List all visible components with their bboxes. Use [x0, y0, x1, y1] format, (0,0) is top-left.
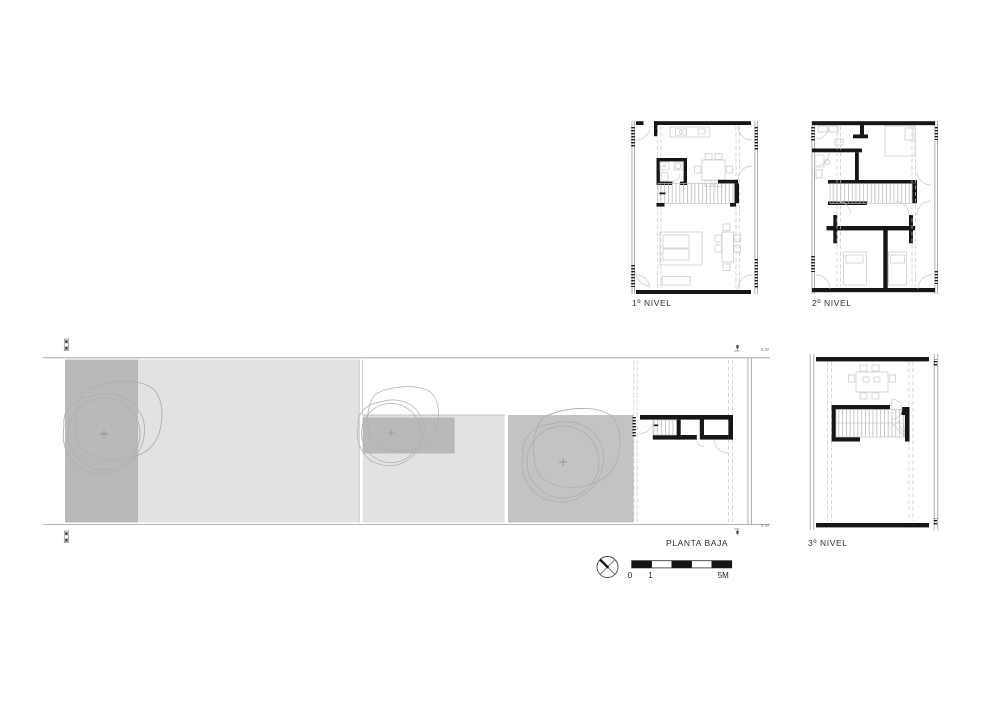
- level-marker: [64, 339, 68, 351]
- kitchen-counter: [670, 127, 710, 137]
- stair-enclosure: [832, 399, 910, 442]
- floor-plan-1-nivel: [631, 121, 758, 294]
- bedrooms-lower: [844, 252, 907, 285]
- boundary-label-em-bottom: E.M: [761, 523, 769, 528]
- wall-hatch: [631, 126, 635, 148]
- service-block: [633, 415, 734, 453]
- label-planta-baja: PLANTA BAJA: [666, 538, 728, 548]
- staircase: [653, 420, 677, 435]
- label-nivel-2: 2º NIVEL: [812, 298, 852, 308]
- staircase: [657, 180, 740, 207]
- label-nivel-3: 3º NIVEL: [808, 538, 848, 548]
- terrace-table: [849, 365, 896, 399]
- datum-mark: [734, 529, 740, 536]
- floor-plan-planta-baja: E.M E.M: [43, 339, 770, 543]
- bed-upper: [885, 126, 915, 156]
- floor-plan-2-nivel: [811, 121, 938, 294]
- scale-label-1: 1: [648, 571, 653, 580]
- level-marker: [64, 531, 68, 543]
- bathroom: [657, 158, 688, 185]
- scale-bar: 0 1 5M: [628, 561, 732, 581]
- floor-plan-3-nivel: [810, 354, 938, 530]
- scale-label-0: 0: [628, 571, 633, 580]
- boundary-label-em-top: E.M: [761, 347, 769, 352]
- scale-label-5m: 5M: [718, 571, 729, 580]
- garden-gray: [508, 415, 634, 523]
- courtyard-light: [138, 360, 359, 523]
- plan-sheet: 1º NIVEL: [0, 0, 1000, 708]
- table-with-chairs: [715, 224, 741, 271]
- sofa: [660, 232, 702, 285]
- label-nivel-1: 1º NIVEL: [632, 298, 672, 308]
- staircase: [830, 184, 912, 204]
- north-arrow-icon: [597, 557, 618, 578]
- datum-mark: [734, 345, 740, 352]
- planter-dark: [363, 418, 455, 454]
